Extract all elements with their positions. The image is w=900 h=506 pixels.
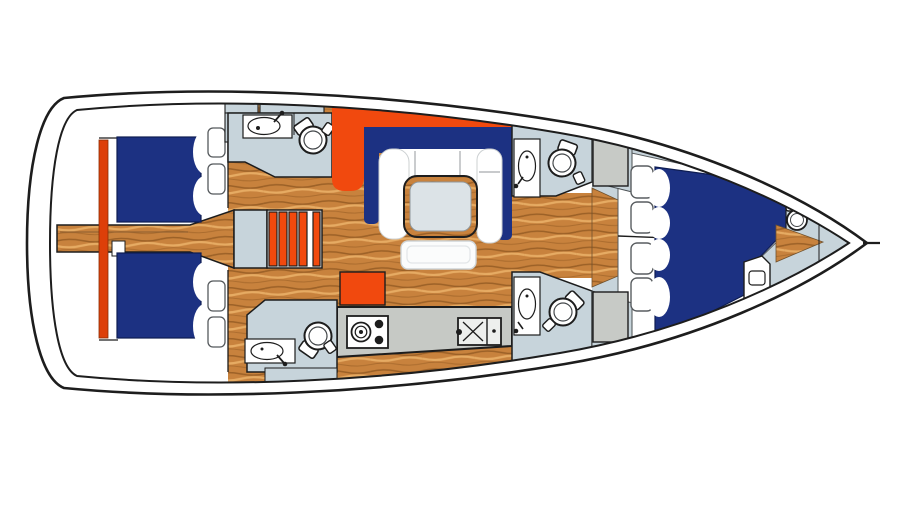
pillow	[648, 277, 670, 317]
bench-seat	[401, 241, 476, 269]
pillow	[648, 207, 670, 239]
aft-berth-starboard	[117, 253, 217, 348]
stove-icon	[347, 316, 388, 348]
galley-sink-icon	[456, 318, 501, 345]
sink-icon	[245, 339, 295, 366]
aft-head-starboard	[245, 300, 337, 382]
corridor-sole	[512, 193, 592, 278]
pillow	[648, 239, 670, 271]
sink-icon	[514, 139, 540, 197]
refrigerator-block	[340, 272, 385, 305]
yacht-floor-plan	[0, 0, 900, 506]
forward-cabin-sole	[592, 188, 618, 287]
cabinet	[593, 292, 628, 342]
companionway-landing	[234, 210, 267, 268]
pillow	[648, 169, 670, 207]
dining-table	[404, 176, 477, 237]
companionway-stairs	[267, 210, 322, 268]
sink-icon	[243, 111, 292, 138]
sink-icon	[514, 277, 540, 335]
berth-headboard-panel	[99, 140, 108, 338]
floor-plan-canvas	[0, 0, 900, 506]
